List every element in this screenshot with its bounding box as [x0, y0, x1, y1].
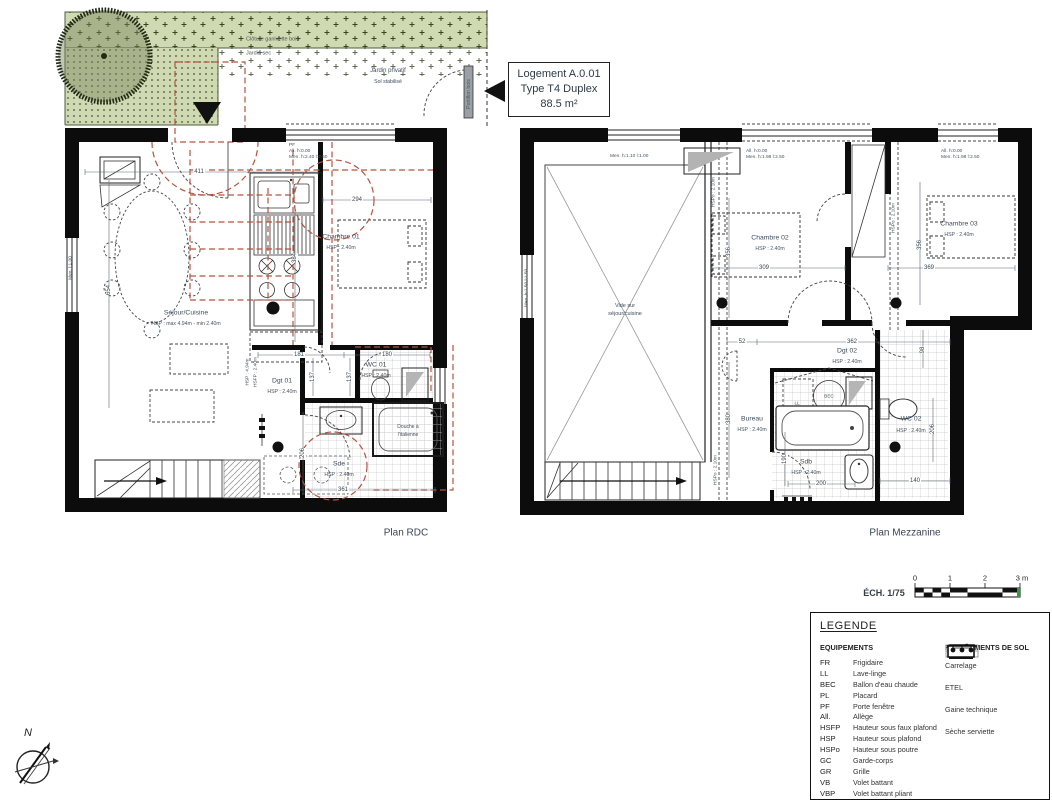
legend-row: PFPorte fenêtre: [820, 702, 946, 713]
void-label-1: Vide sur: [615, 303, 635, 309]
dim-309: 309: [758, 265, 770, 271]
mezz-left-window-note: Men. h:1.50 l:1.50: [525, 269, 530, 307]
legend-row: FRFrigidaire: [820, 658, 946, 669]
rdc-hsp-vert: HSP : 4.94m: [246, 358, 251, 385]
legend-abbr: All.: [820, 712, 853, 721]
scale-label: ÉCH. 1/75: [863, 588, 905, 598]
portillon-label: Portillon bois: [466, 79, 472, 109]
legend-equipment-title: EQUIPEMENTS: [820, 643, 946, 652]
title-block: Logement A.0.01 Type T4 Duplex 88.5 m²: [508, 62, 610, 117]
room-wc02-label: WC 02: [901, 416, 922, 423]
garde-corps: [705, 142, 711, 462]
legend-row: LLLave-linge: [820, 669, 946, 680]
unit-type: Type T4 Duplex: [509, 82, 609, 97]
stairs-rdc: [95, 460, 260, 498]
room-dgt01-hsp: HSP : 2.40m: [267, 389, 296, 395]
legend-label: Hauteur sous poutre: [853, 745, 918, 754]
legend-label: Garde-corps: [853, 756, 893, 765]
legend-row: HSFPHauteur sous faux plafond: [820, 723, 946, 734]
garden-cloture-label: Clôture ganivette bois: [246, 37, 299, 44]
dim-140: 140: [909, 478, 921, 484]
plan-mezzanine-title: Plan Mezzanine: [869, 528, 940, 539]
legend-row: GCGarde-corps: [820, 756, 946, 767]
legend-box: LEGENDE EQUIPEMENTS FRFrigidaire LLLave-…: [810, 612, 1050, 800]
dim-356b: 356: [917, 240, 923, 250]
dim-294: 294: [351, 197, 363, 203]
legend-abbr: GR: [820, 767, 853, 776]
legend-row: PLPlacard: [820, 691, 946, 702]
legend-abbr: VB: [820, 778, 853, 787]
room-dgt02-label: Dgt 02: [837, 348, 857, 355]
mezz-window-note-2b: Men. h:1.98 l:2.50: [746, 155, 784, 161]
rdc-hsfp-vert: HSFP : 2.40m: [254, 357, 259, 387]
legend-title: LEGENDE: [820, 620, 1049, 632]
legend-row: HSPHauteur sous plafond: [820, 734, 946, 745]
legend-flooring-row: ETEL: [945, 680, 1045, 695]
legend-abbr: HSFP: [820, 723, 853, 732]
post: [890, 442, 901, 453]
mezz-hspo-2: HSPo : 2.10m: [892, 203, 897, 233]
unit-id: Logement A.0.01: [509, 67, 609, 82]
room-wc02-hsp: HSP : 2.40m: [896, 428, 925, 434]
rdc-window-note-2: Men. h:2.40 l:2.50: [289, 155, 327, 161]
dim-137a: 137: [310, 372, 316, 382]
room-sdb-label: Sdb: [800, 459, 812, 466]
dim-52: 52: [738, 339, 747, 345]
post: [273, 442, 284, 453]
legend-row: BECBallon d'eau chaude: [820, 680, 946, 691]
room-chambre02-label: Chambre 02: [751, 235, 788, 242]
dim-180: 180: [381, 352, 393, 358]
bureau-desk: [722, 351, 737, 381]
dim-206: 206: [300, 448, 306, 458]
room-sejour-hsp: HSP : max 4.94m - min 2.40m: [151, 321, 220, 327]
legend-flooring-label: Sèche serviette: [945, 727, 995, 736]
room-bureau-hsp: HSP : 2.40m: [737, 427, 766, 433]
placard: [852, 145, 885, 257]
legend-label: Volet battant: [853, 778, 893, 787]
room-wc01-label: WC 01: [366, 362, 387, 369]
legend-label: Lave-linge: [853, 669, 886, 678]
dim-181: 181: [293, 352, 305, 358]
legend-label: Volet battant pliant: [853, 789, 912, 798]
legend-label: Grille: [853, 767, 870, 776]
mezz-hspo-3: HSPo : 2.10m: [714, 455, 719, 485]
legend-abbr: PF: [820, 702, 853, 711]
ll-label: LL: [794, 401, 799, 406]
stairs-mezzanine: [545, 462, 700, 500]
bec-label: BEC: [824, 394, 833, 399]
dim-137b: 137: [347, 372, 353, 382]
legend-abbr: GC: [820, 756, 853, 765]
legend-label: Placard: [853, 691, 877, 700]
legend-flooring-label: ETEL: [945, 683, 963, 692]
legend-label: Hauteur sous plafond: [853, 734, 921, 743]
bed-chambre02: [712, 213, 800, 277]
scale-bar: [915, 583, 1020, 597]
legend-label: Porte fenêtre: [853, 702, 895, 711]
room-chambre03-label: Chambre 03: [940, 221, 977, 228]
void-label-2: séjour/cuisine: [608, 311, 642, 317]
legend-flooring-label: Gaine technique: [945, 705, 997, 714]
dim-356a: 356: [726, 247, 732, 257]
mezz-window-note-3b: Men. h:1.98 l:2.50: [941, 155, 979, 161]
legend-abbr: LL: [820, 669, 853, 678]
legend-abbr: PL: [820, 691, 853, 700]
legend-flooring-column: REVETEMENTS DE SOL Carrelage ETEL Gaine …: [945, 643, 1045, 746]
legend-label: Ballon d'eau chaude: [853, 680, 918, 689]
plan-rdc-title: Plan RDC: [384, 528, 428, 539]
legend-abbr: BEC: [820, 680, 853, 689]
legend-row: VBVolet battant: [820, 778, 946, 789]
room-chambre01-label: Chambre 01: [322, 234, 359, 241]
dim-200: 200: [815, 481, 827, 487]
legend-abbr: FR: [820, 658, 853, 667]
seche-serviette-icon: [945, 643, 979, 655]
shower-label-2: l'italienne: [398, 432, 419, 438]
post: [891, 298, 902, 309]
scale-tick-1: 1: [948, 574, 952, 583]
plan-mezzanine: [520, 124, 1032, 515]
legend-abbr: HSPo: [820, 745, 853, 754]
room-chambre01-hsp: HSP : 2.40m: [326, 245, 355, 251]
garden-area: [58, 10, 505, 142]
post: [717, 298, 728, 309]
scale-tick-3: 3 m: [1016, 574, 1029, 583]
dim-190: 190: [782, 454, 788, 464]
coffee-table: [150, 390, 214, 422]
room-sdb-hsp: HSP : 2.40m: [791, 470, 820, 476]
legend-abbr: VBP: [820, 789, 853, 798]
sofa: [170, 344, 228, 374]
room-chambre02-hsp: HSP : 2.40m: [755, 246, 784, 252]
legend-equipment-column: EQUIPEMENTS FRFrigidaire LLLave-linge BE…: [820, 643, 946, 800]
scale-tick-2: 2: [983, 574, 987, 583]
unit-area: 88.5 m²: [509, 97, 609, 112]
dim-411: 411: [193, 169, 205, 175]
dim-369: 369: [923, 265, 935, 271]
room-bureau-label: Bureau: [741, 416, 763, 423]
legend-label: Frigidaire: [853, 658, 883, 667]
room-wc01-hsp: HSP : 2.40m: [361, 373, 390, 379]
legend-row: All.Allège: [820, 712, 946, 723]
kitchen-strip: [250, 173, 322, 362]
garden-sol-label: Sol stabilisé: [374, 79, 402, 85]
garden-jardinsec-label: Jardin sec: [246, 51, 271, 58]
legend-label: Allège: [853, 712, 873, 721]
seche-serviette-rdc: [259, 414, 265, 446]
portillon-swing: [424, 70, 464, 116]
room-sde-label: Sde: [333, 461, 345, 468]
legend-flooring-row: Gaine technique: [945, 702, 1045, 717]
dim-384: 384: [292, 253, 298, 263]
dim-362: 362: [846, 339, 858, 345]
scale-tick-0: 0: [913, 574, 917, 583]
legend-row: VBPVolet battant pliant: [820, 789, 946, 800]
bathtub: [776, 406, 869, 450]
legend-label: Hauteur sous faux plafond: [853, 723, 937, 732]
dim-206b: 206: [930, 424, 936, 434]
legend-flooring-label: Carrelage: [945, 661, 977, 670]
garden-privatif-label: Jardin privatif: [370, 68, 406, 74]
legend-flooring-row: Sèche serviette: [945, 724, 1045, 739]
room-chambre03-hsp: HSP : 2.40m: [944, 232, 973, 238]
dim-361: 361: [337, 487, 349, 493]
legend-abbr: HSP: [820, 734, 853, 743]
legend-row: GRGrille: [820, 767, 946, 778]
room-sejour-label: Séjour/Cuisine: [164, 310, 208, 317]
north-label: N: [24, 727, 32, 739]
mezz-window-note-1: Men. h:1.10 l:1.00: [610, 154, 648, 160]
dim-98: 98: [920, 347, 926, 354]
mezz-hspo-1: HSPo : 2.10m: [712, 177, 717, 207]
bed-chambre01: [338, 220, 426, 288]
rdc-left-window-note: Men. l:1.00: [69, 256, 74, 280]
floorplan-sheet: Clôture ganivette bois Jardin sec Jardin…: [0, 0, 1052, 800]
room-sde-hsp: HSP : 2.40m: [324, 472, 353, 478]
room-dgt01-label: Dgt 01: [272, 378, 292, 385]
plan-rdc: [65, 124, 453, 512]
north-compass-icon: [15, 742, 59, 784]
dim-654: 654: [106, 285, 112, 295]
shower-label-1: Douche à: [397, 424, 418, 430]
legend-row: HSPoHauteur sous poutre: [820, 745, 946, 756]
room-dg02-hsp: HSP : 2.40m: [832, 359, 861, 365]
dim-380: 380: [726, 414, 732, 424]
